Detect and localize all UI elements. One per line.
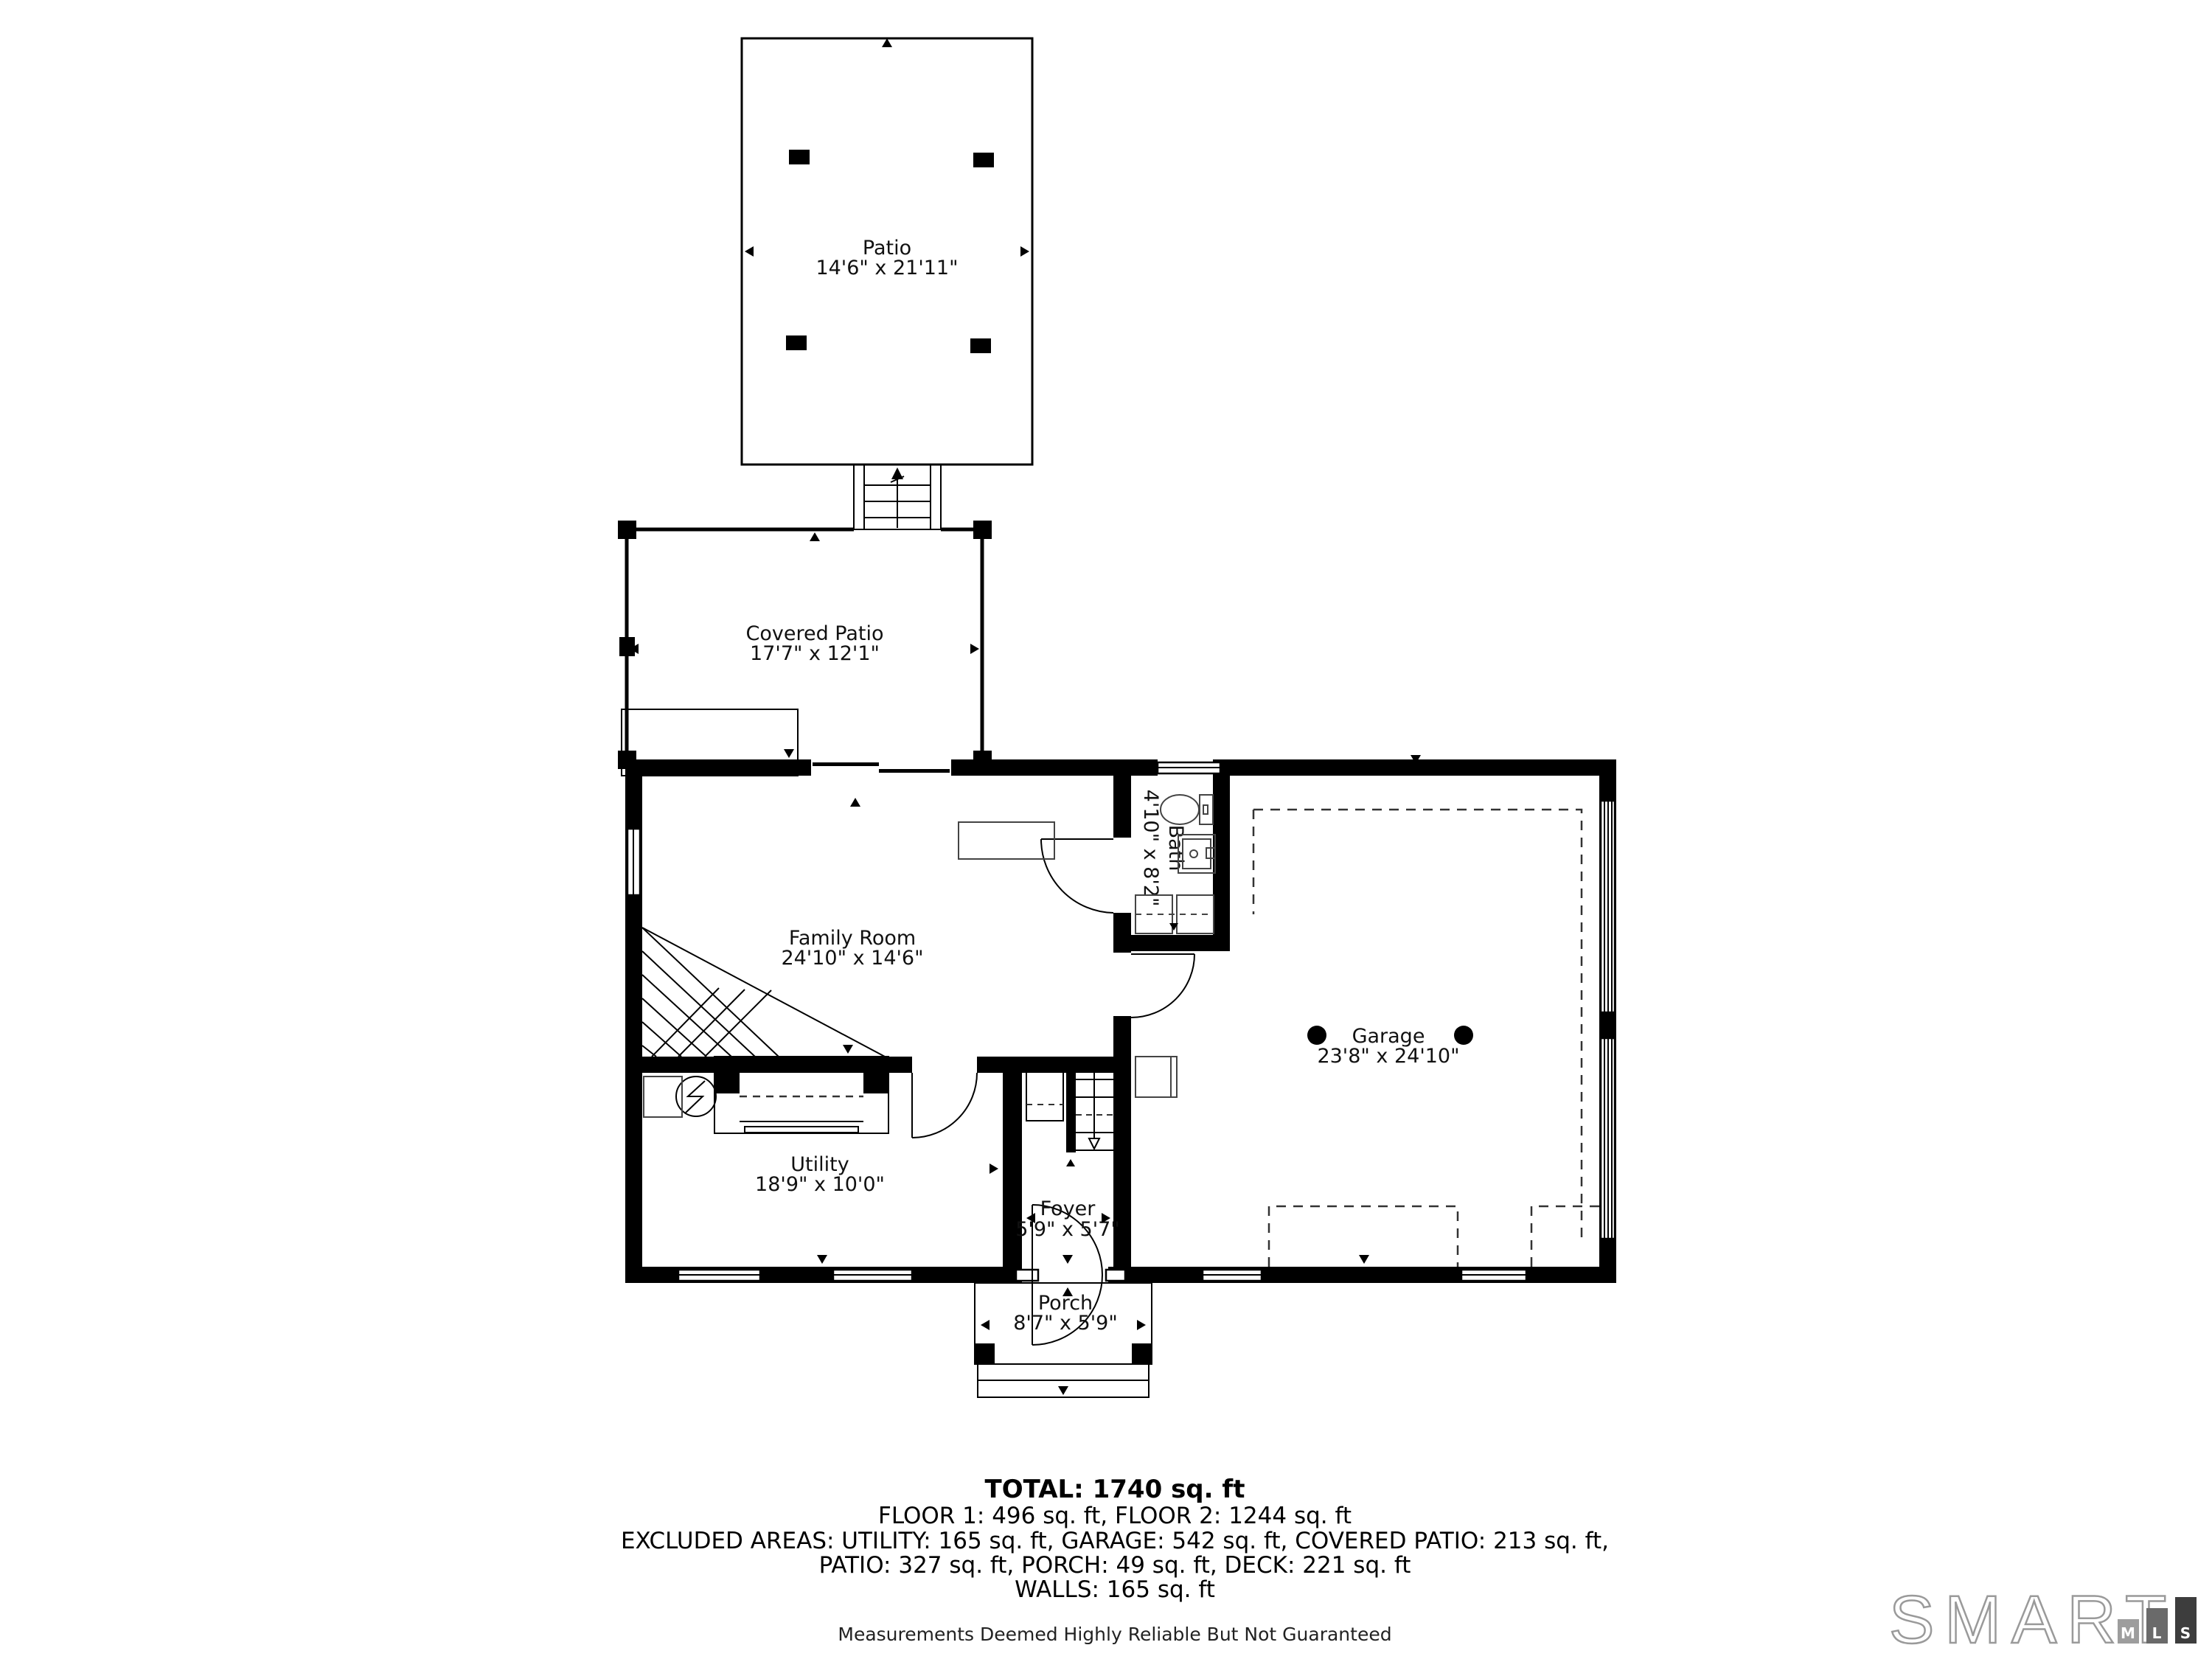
porch-dims: 8'7" x 5'9" <box>1013 1312 1118 1335</box>
porch-post-icon <box>975 1343 995 1363</box>
sidelight-window <box>1016 1270 1038 1281</box>
deck-stairs <box>854 465 941 529</box>
room-bath: Bath 4'10" x 8'2" <box>1135 790 1215 933</box>
garage-shelf <box>1135 1057 1177 1097</box>
room-garage: Garage 23'8" x 24'10" <box>1135 810 1599 1267</box>
sliding-door-panel <box>813 762 879 766</box>
covered-patio-post-icon <box>973 521 992 539</box>
summary-walls: WALLS: 165 sq. ft <box>1015 1576 1215 1603</box>
room-patio: Patio 14'6" x 21'11" <box>742 38 1032 465</box>
smartmls-logo: SMART M L S <box>1889 1582 2197 1658</box>
door-arc <box>912 1073 977 1138</box>
utility-dims: 18'9" x 10'0" <box>755 1173 885 1196</box>
summary-excluded-1: EXCLUDED AREAS: UTILITY: 165 sq. ft, GAR… <box>621 1528 1609 1554</box>
patio-post-icon <box>789 150 810 164</box>
logo-letter-s: S <box>2180 1624 2191 1642</box>
bath-label: Bath <box>1164 825 1187 872</box>
room-family: Family Room 24'10" x 14'6" <box>642 822 1054 1069</box>
interior-stairs <box>1066 1060 1113 1166</box>
patio-post-icon <box>786 335 807 350</box>
patio-post-icon <box>970 338 991 353</box>
door-arc <box>1131 954 1194 1018</box>
covered-patio-post-icon <box>619 637 635 656</box>
logo-letter-l: L <box>2152 1624 2162 1642</box>
room-porch: Porch 8'7" x 5'9" <box>975 1283 1152 1397</box>
fireplace <box>959 822 1054 859</box>
foyer-label: Foyer <box>1040 1197 1096 1220</box>
sidelight-window <box>1106 1270 1125 1281</box>
sliding-door-panel <box>879 769 950 773</box>
summary-excluded-2: PATIO: 327 sq. ft, PORCH: 49 sq. ft, DEC… <box>819 1552 1411 1579</box>
room-covered-patio: Covered Patio 17'7" x 12'1" <box>618 521 992 776</box>
summary-floors: FLOOR 1: 496 sq. ft, FLOOR 2: 1244 sq. f… <box>878 1503 1352 1529</box>
covered-patio-dims: 17'7" x 12'1" <box>750 642 880 665</box>
garage-dims: 23'8" x 24'10" <box>1317 1045 1459 1068</box>
covered-patio-post-icon <box>618 521 636 539</box>
toilet-icon <box>1161 795 1213 824</box>
floor-plan: Patio 14'6" x 21'11" Covered Patio 17'7"… <box>0 0 2212 1659</box>
room-utility: Utility 18'9" x 10'0" <box>644 1057 888 1196</box>
garage-door-dash <box>1531 1206 1599 1267</box>
summary-block: TOTAL: 1740 sq. ft FLOOR 1: 496 sq. ft, … <box>621 1475 1609 1645</box>
summary-disclaimer: Measurements Deemed Highly Reliable But … <box>838 1624 1391 1645</box>
patio-dims: 14'6" x 21'11" <box>815 257 958 279</box>
family-room-dims: 24'10" x 14'6" <box>781 947 923 970</box>
room-foyer: Foyer 5'9" x 5'7" <box>1015 1060 1120 1241</box>
porch-post-icon <box>1132 1343 1152 1363</box>
patio-post-icon <box>973 153 994 167</box>
logo-letter-m: M <box>2121 1624 2135 1642</box>
summary-total: TOTAL: 1740 sq. ft <box>985 1475 1245 1504</box>
bath-dims: 4'10" x 8'2" <box>1139 790 1162 907</box>
door-arc <box>1041 839 1113 913</box>
garage-post-icon <box>1454 1026 1473 1045</box>
garage-post-icon <box>1307 1026 1326 1045</box>
